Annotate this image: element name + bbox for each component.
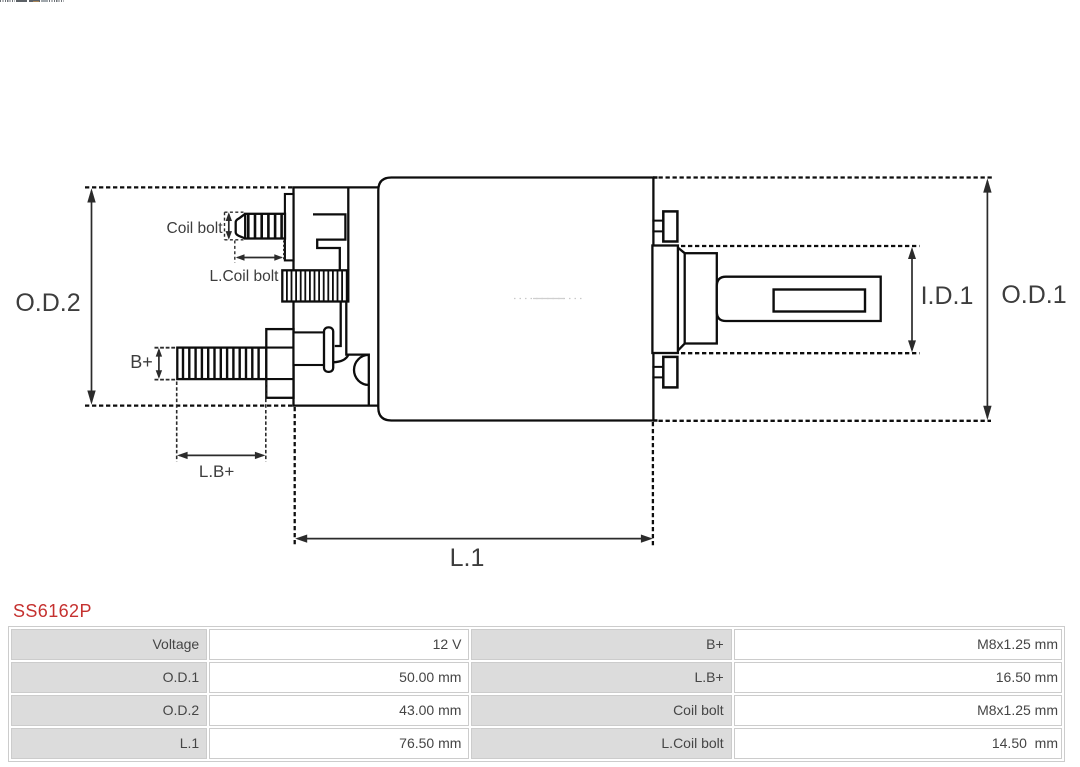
- svg-text:L.B+: L.B+: [199, 462, 235, 481]
- svg-text:O.D.2: O.D.2: [15, 289, 80, 317]
- svg-text:O.D.1: O.D.1: [1001, 281, 1066, 309]
- svg-text:L.Coil bolt: L.Coil bolt: [210, 268, 280, 285]
- svg-text:Coil bolt: Coil bolt: [167, 220, 224, 237]
- svg-text:L.1: L.1: [450, 544, 485, 572]
- svg-text:I.D.1: I.D.1: [921, 282, 974, 310]
- svg-text:B+: B+: [130, 352, 153, 372]
